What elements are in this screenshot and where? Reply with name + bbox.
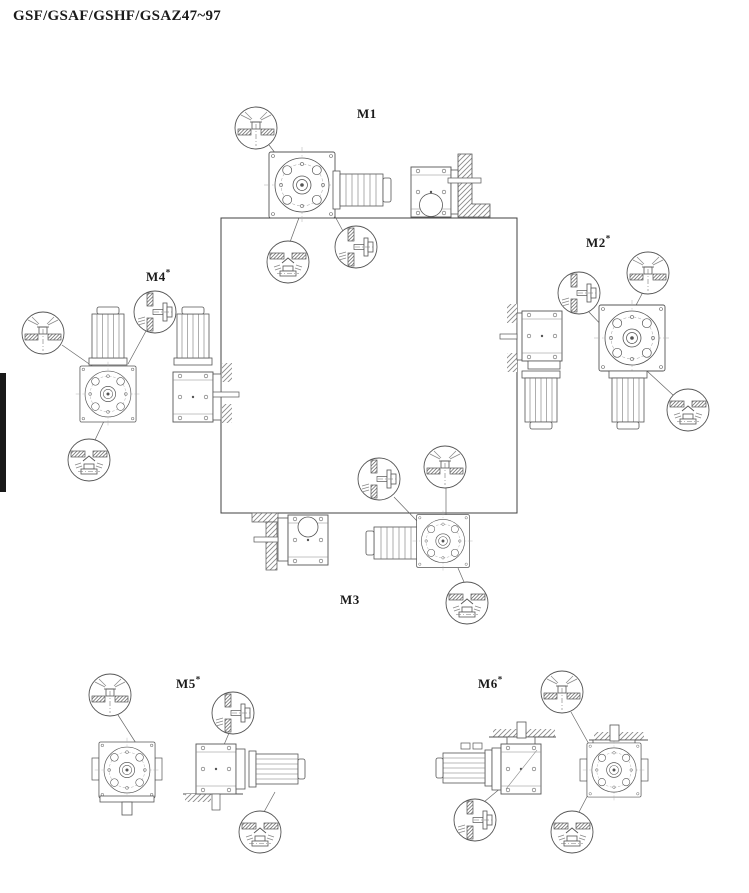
position-label-m4: M4*	[146, 269, 171, 285]
m2-breather-plug-icon	[627, 252, 669, 294]
m3-gearbox-side-view	[252, 513, 328, 570]
m5-motor	[249, 751, 305, 787]
m1-assembly	[235, 107, 490, 283]
mounting-positions-diagram	[0, 0, 749, 893]
m6-breather-plug-icon	[541, 671, 583, 713]
m1-breather-plug-icon	[235, 107, 277, 149]
position-label-text: M5	[176, 676, 196, 691]
m6-output-shaft	[517, 722, 526, 738]
m1-mounting-wall	[458, 154, 490, 217]
position-label-text: M3	[340, 592, 360, 607]
m6-output-shaft	[610, 725, 619, 741]
m3-assembly	[252, 446, 488, 624]
m2-wall-hatch	[507, 353, 517, 372]
m1-gearbox-front-view	[264, 147, 340, 223]
m5-gearbox-side-view	[183, 744, 305, 810]
position-label-asterisk: *	[196, 675, 201, 685]
m6-gearbox-side-view	[436, 722, 556, 794]
m3-gearbox-front-view	[366, 511, 473, 572]
m2-motor	[522, 371, 560, 429]
m2-oil-drain-plug-icon	[667, 389, 709, 431]
m5-output-shaft	[122, 802, 132, 815]
m4-motor	[89, 307, 127, 365]
position-label-text: M6	[478, 676, 498, 691]
catalog-page: GSF/GSAF/GSHF/GSAZ47~97	[0, 0, 749, 893]
m6-gearbox-front-view	[580, 725, 648, 801]
m2-motor	[609, 371, 647, 429]
m2-oil-level-plug-icon	[558, 272, 600, 314]
m2-output-shaft	[500, 334, 517, 339]
m3-motor	[366, 524, 424, 562]
m5-gearbox-front-view	[92, 738, 162, 815]
m5-oil-drain-plug-icon	[239, 811, 281, 853]
m4-output-shaft	[213, 392, 239, 397]
m4-gearbox-front-view	[76, 307, 141, 426]
position-label-m6: M6*	[478, 676, 503, 692]
m4-wall-hatch	[222, 404, 232, 423]
m3-ceiling-bracket	[266, 522, 277, 570]
m2-wall-hatch	[507, 304, 517, 323]
m6-assembly	[436, 671, 648, 853]
m1-output-shaft	[448, 178, 481, 183]
m4-oil-drain-plug-icon	[68, 439, 110, 481]
position-label-text: M1	[357, 106, 377, 121]
m6-oil-level-plug-icon	[454, 799, 496, 841]
position-label-asterisk: *	[498, 675, 503, 685]
m2-gearbox-front-view	[594, 300, 670, 429]
m5-output-shaft	[212, 794, 220, 810]
m1-motor	[333, 171, 391, 209]
position-label-asterisk: *	[606, 234, 611, 244]
m1-oil-drain-plug-icon	[267, 241, 309, 283]
m3-output-shaft	[254, 537, 278, 542]
m3-oil-level-plug-icon	[358, 458, 400, 500]
position-label-m3: M3	[340, 592, 360, 608]
position-label-m1: M1	[357, 106, 377, 122]
position-label-text: M2	[586, 235, 606, 250]
position-label-asterisk: *	[166, 268, 171, 278]
m5-breather-plug-icon	[89, 674, 131, 716]
m5-oil-level-plug-icon	[212, 692, 254, 734]
position-label-m2: M2*	[586, 235, 611, 251]
m4-wall-hatch	[222, 363, 232, 382]
m5-assembly	[89, 674, 305, 853]
m4-oil-level-plug-icon	[134, 291, 176, 333]
m6-oil-drain-plug-icon	[551, 811, 593, 853]
m2-assembly	[500, 252, 709, 431]
m4-assembly	[22, 291, 239, 481]
m6-motor	[436, 750, 492, 786]
m4-breather-plug-icon	[22, 312, 64, 354]
m5-floor-hatch	[185, 794, 211, 802]
m3-oil-drain-plug-icon	[446, 582, 488, 624]
m3-ceiling-bracket	[252, 513, 278, 522]
m4-motor	[174, 307, 212, 365]
m1-oil-level-plug-icon	[335, 226, 377, 268]
position-label-text: M4	[146, 269, 166, 284]
m3-breather-plug-icon	[424, 446, 466, 488]
position-label-m5: M5*	[176, 676, 201, 692]
m1-gearbox-side-view	[411, 154, 490, 217]
